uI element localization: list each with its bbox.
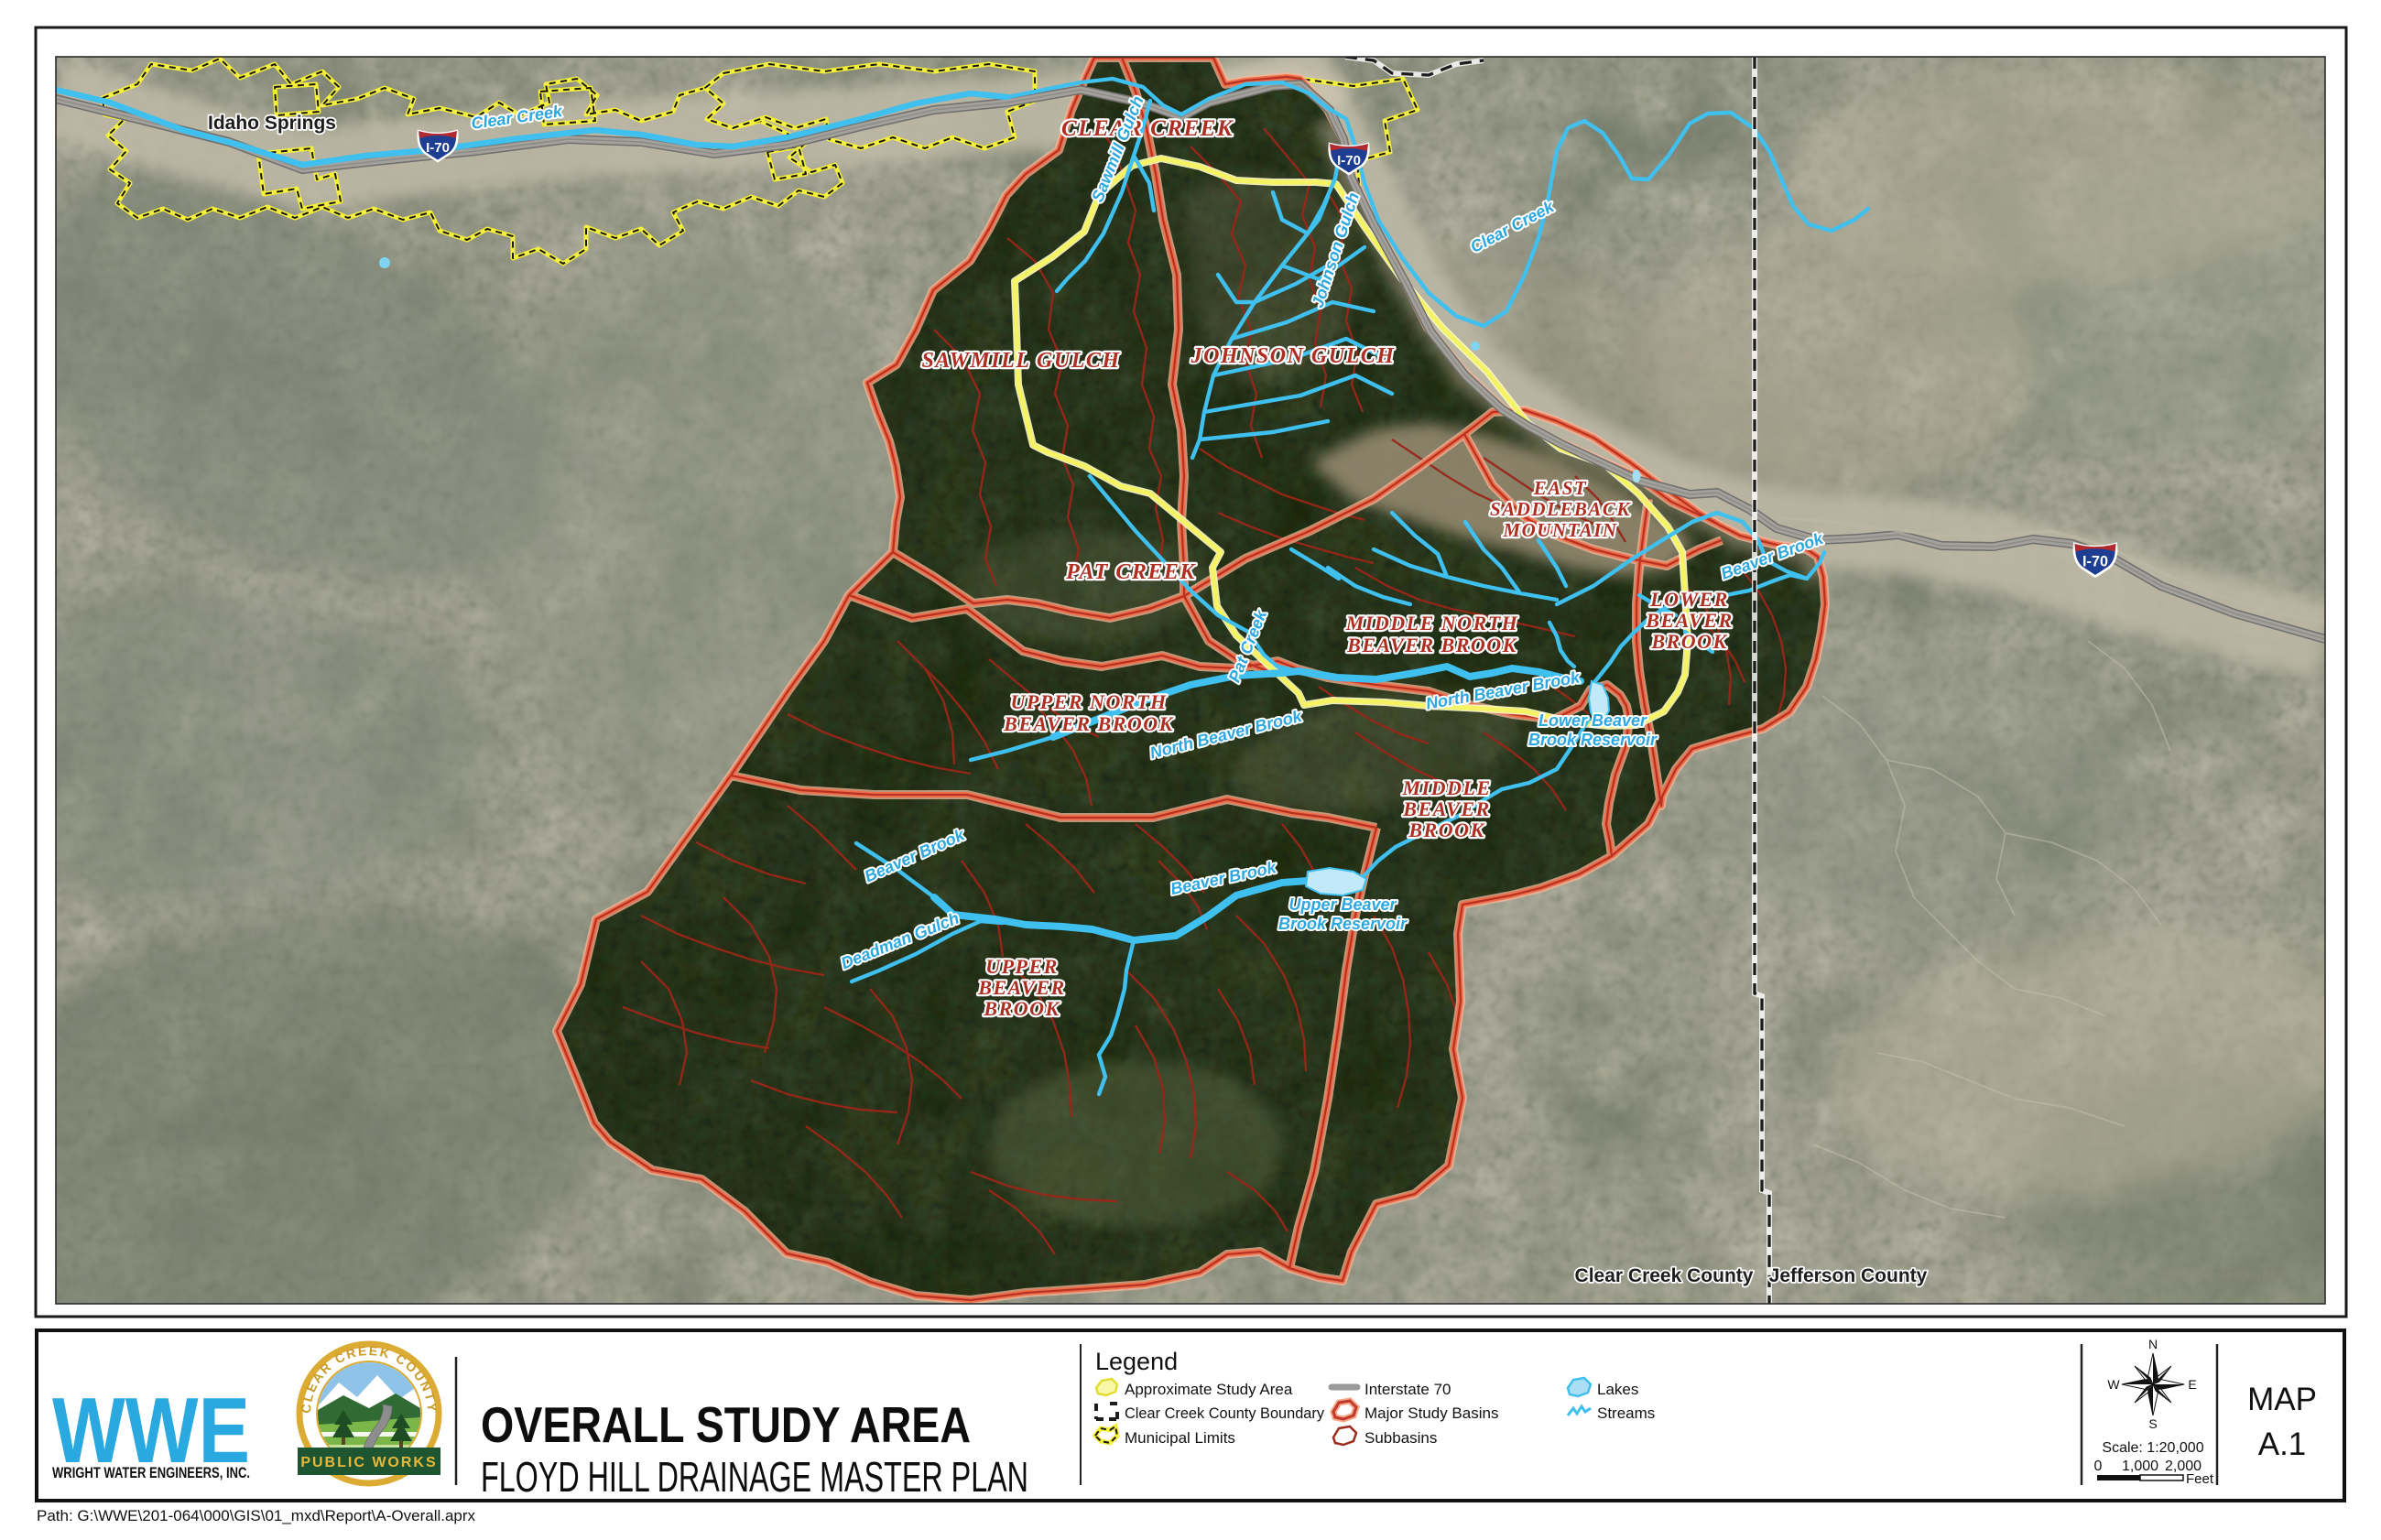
svg-text:Clear Creek County: Clear Creek County <box>1575 1265 1754 1286</box>
svg-text:WRIGHT WATER ENGINEERS, INC.: WRIGHT WATER ENGINEERS, INC. <box>52 1465 250 1481</box>
svg-text:FLOYD HILL DRAINAGE MASTER PLA: FLOYD HILL DRAINAGE MASTER PLAN <box>481 1453 1028 1501</box>
svg-text:1,000: 1,000 <box>2122 1459 2158 1474</box>
svg-text:OVERALL STUDY AREA: OVERALL STUDY AREA <box>481 1396 971 1453</box>
svg-text:Approximate Study Area: Approximate Study Area <box>1125 1381 1293 1398</box>
svg-text:W: W <box>2107 1377 2120 1392</box>
svg-text:Subbasins: Subbasins <box>1364 1429 1437 1447</box>
svg-text:Feet: Feet <box>2186 1471 2214 1487</box>
svg-text:Scale: 1:20,000: Scale: 1:20,000 <box>2102 1440 2203 1456</box>
svg-text:Lower BeaverBrook Reservoir: Lower BeaverBrook Reservoir <box>1528 711 1658 749</box>
svg-text:Interstate 70: Interstate 70 <box>1364 1381 1451 1398</box>
svg-text:S: S <box>2148 1416 2157 1431</box>
svg-text:JOHNSON GULCH: JOHNSON GULCH <box>1190 344 1396 368</box>
svg-text:Jefferson County: Jefferson County <box>1769 1265 1928 1286</box>
svg-text:MIDDLE NORTHBEAVER BROOK: MIDDLE NORTHBEAVER BROOK <box>1345 612 1519 656</box>
svg-text:Major Study Basins: Major Study Basins <box>1364 1404 1498 1422</box>
svg-text:Idaho Springs: Idaho Springs <box>208 113 336 134</box>
svg-text:I-70: I-70 <box>2082 554 2108 570</box>
svg-text:I-70: I-70 <box>1337 153 1361 168</box>
svg-text:I-70: I-70 <box>426 140 450 156</box>
svg-text:PUBLIC WORKS: PUBLIC WORKS <box>300 1455 437 1470</box>
svg-text:Earthstar Geographics: Earthstar Geographics <box>2166 1267 2286 1281</box>
svg-text:A.1: A.1 <box>2258 1426 2307 1462</box>
svg-text:Municipal Limits: Municipal Limits <box>1125 1429 1235 1447</box>
svg-text:Upper BeaverBrook Reservoir: Upper BeaverBrook Reservoir <box>1278 895 1408 933</box>
svg-text:PAT CREEK: PAT CREEK <box>1065 560 1196 584</box>
svg-text:Streams: Streams <box>1597 1404 1655 1422</box>
svg-text:SAWMILL GULCH: SAWMILL GULCH <box>921 349 1120 373</box>
svg-text:Path: G:\WWE\201-064\000\GIS\0: Path: G:\WWE\201-064\000\GIS\01_mxd\Repo… <box>37 1507 476 1524</box>
svg-text:Lakes: Lakes <box>1597 1381 1638 1398</box>
svg-text:N: N <box>2148 1337 2158 1351</box>
svg-text:0: 0 <box>2094 1459 2103 1474</box>
svg-text:Legend: Legend <box>1095 1348 1178 1375</box>
svg-text:CLEAR CREEK: CLEAR CREEK <box>1061 116 1234 141</box>
svg-text:LOWERBEAVERBROOK: LOWERBEAVERBROOK <box>1645 588 1733 653</box>
svg-text:MIDDLEBEAVERBROOK: MIDDLEBEAVERBROOK <box>1401 776 1491 841</box>
svg-text:MAP: MAP <box>2247 1382 2317 1417</box>
svg-text:UPPER NORTHBEAVER BROOK: UPPER NORTHBEAVER BROOK <box>1003 690 1174 735</box>
svg-text:Clear Creek County Boundary: Clear Creek County Boundary <box>1125 1404 1324 1422</box>
svg-text:UPPERBEAVERBROOK: UPPERBEAVERBROOK <box>977 955 1065 1020</box>
svg-text:E: E <box>2188 1377 2196 1392</box>
